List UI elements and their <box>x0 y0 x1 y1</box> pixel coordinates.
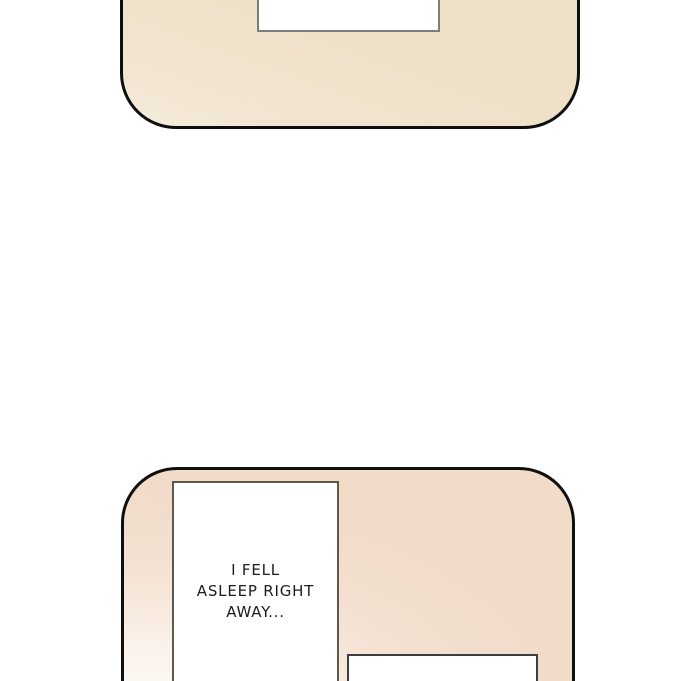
speech-text: I FELL ASLEEP RIGHT AWAY... <box>174 560 337 623</box>
speech-text-line-3: AWAY... <box>174 602 337 623</box>
speech-box-narration: I FELL ASLEEP RIGHT AWAY... <box>172 481 339 681</box>
speech-box-top-cropped <box>257 0 440 32</box>
comic-page: I FELL ASLEEP RIGHT AWAY... <box>0 0 700 681</box>
speech-text-line-1: I FELL <box>174 560 337 581</box>
speech-box-bottom-cropped <box>347 654 538 681</box>
speech-text-line-2: ASLEEP RIGHT <box>174 581 337 602</box>
